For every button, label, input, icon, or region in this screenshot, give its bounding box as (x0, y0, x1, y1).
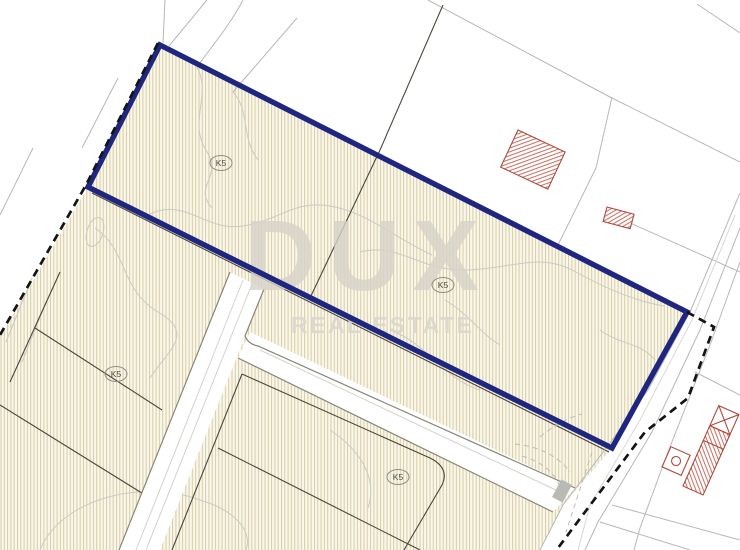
building-footprint-small (603, 207, 634, 229)
building-footprint-large (501, 130, 565, 189)
watermark-logo-text: DUX (244, 200, 491, 312)
cadastral-map: DUX REAL ESTATE K5 K5 (0, 0, 740, 550)
svg-text:K5: K5 (111, 369, 122, 379)
svg-text:K5: K5 (216, 158, 227, 168)
map-canvas: DUX REAL ESTATE K5 K5 (0, 0, 740, 550)
building-annex-circle (670, 455, 682, 467)
svg-text:K5: K5 (393, 472, 404, 482)
svg-text:K5: K5 (438, 280, 449, 290)
